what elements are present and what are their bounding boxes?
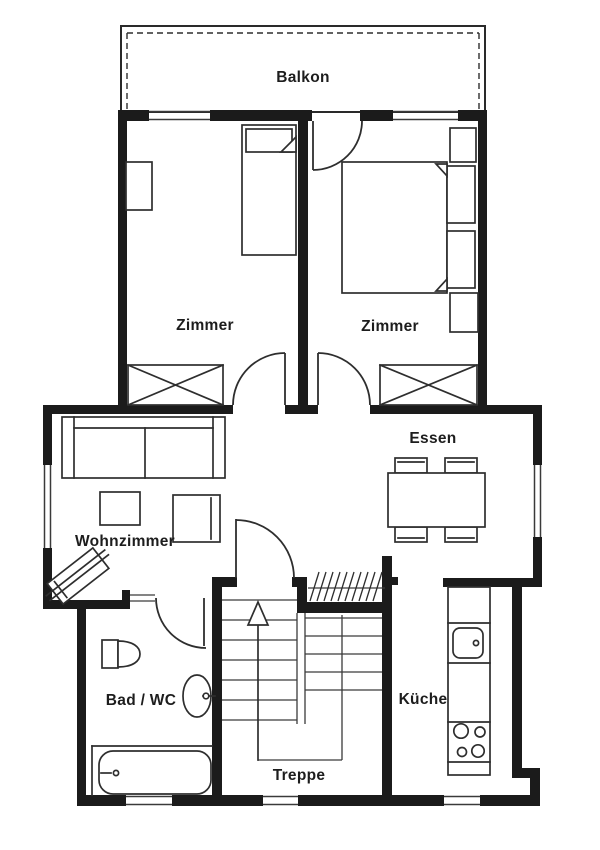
room-label-dining: Essen [409, 430, 456, 447]
bathtub-icon [92, 746, 212, 795]
room-label-bedroom-left: Zimmer [176, 317, 234, 334]
sink-icon [183, 675, 215, 717]
entry-door [236, 519, 294, 578]
wall-segment [212, 577, 237, 587]
wardrobe-icon [128, 365, 223, 405]
wall-segment [212, 577, 222, 795]
wardrobe-icon [380, 365, 477, 405]
window [45, 465, 51, 548]
wall-segment [512, 768, 540, 778]
chair-icon [445, 527, 477, 542]
kitchen-counter-icon [448, 587, 490, 775]
window [444, 797, 480, 805]
wall-segment [210, 110, 312, 121]
floor-plan-page: Balkon [0, 0, 600, 845]
wall-segment [382, 556, 392, 795]
wall-segment [77, 609, 86, 806]
wall-segment [360, 110, 393, 121]
nightstand-icon [450, 128, 476, 162]
chair-icon [395, 527, 427, 542]
bath-door [130, 595, 206, 648]
room-label-stairs: Treppe [273, 767, 326, 784]
bedroom-left-door [233, 353, 285, 405]
stairs-icon [222, 600, 382, 760]
room-label-bedroom-right: Zimmer [361, 318, 419, 335]
wall-segment [298, 795, 444, 806]
dining-group: Essen [388, 430, 485, 542]
window [263, 797, 298, 805]
room-label-bath: Bad / WC [106, 692, 176, 709]
closet-icon [126, 162, 152, 210]
wall-segment [285, 405, 318, 414]
room-label-kitchen: Küche [399, 691, 448, 708]
wall-segment [533, 414, 542, 465]
wall-segment [118, 110, 149, 121]
wall-segment [530, 778, 540, 806]
wall-segment [302, 602, 392, 613]
living-room-group: Wohnzimmer [41, 417, 225, 609]
room-label-living: Wohnzimmer [75, 533, 175, 550]
wall-segment [533, 537, 542, 583]
wall-segment [478, 121, 487, 413]
nightstand-icon [450, 293, 478, 332]
wall-segment [43, 600, 130, 609]
window [535, 465, 541, 537]
bedroom-left-group: Zimmer [126, 125, 296, 405]
sofa-icon [62, 417, 225, 478]
wall-segment [390, 577, 398, 585]
wall-segment [122, 590, 130, 600]
single-bed-icon [242, 125, 296, 255]
toilet-icon [102, 640, 140, 668]
chair-icon [445, 458, 477, 473]
dining-table-icon [388, 473, 485, 527]
kitchen-sink-icon [453, 628, 483, 658]
armchair-icon [173, 495, 220, 542]
bedroom-right-group: Zimmer [342, 128, 478, 405]
window [126, 797, 172, 805]
wall-segment [172, 795, 263, 806]
bedroom-right-door [318, 353, 370, 405]
kitchen-group: Küche [399, 587, 490, 775]
floor-plan-drawing: Balkon [0, 0, 600, 845]
wall-segment [512, 587, 522, 768]
coffee-table-icon [100, 492, 140, 525]
wall-segment [77, 795, 126, 806]
wall-segment [458, 110, 487, 121]
wall-segment [298, 121, 308, 405]
chair-icon [395, 458, 427, 473]
balcony-group: Balkon [121, 26, 485, 112]
wall-segment [43, 414, 52, 465]
bathroom-group: Bad / WC [92, 640, 215, 795]
double-bed-icon [342, 162, 475, 293]
room-label-balcony: Balkon [276, 69, 329, 86]
wall-segment [443, 578, 542, 587]
stair-arrow-icon [248, 602, 268, 760]
wall-segment [43, 405, 233, 414]
railing-hatch [308, 572, 385, 601]
wall-segment [370, 405, 542, 414]
